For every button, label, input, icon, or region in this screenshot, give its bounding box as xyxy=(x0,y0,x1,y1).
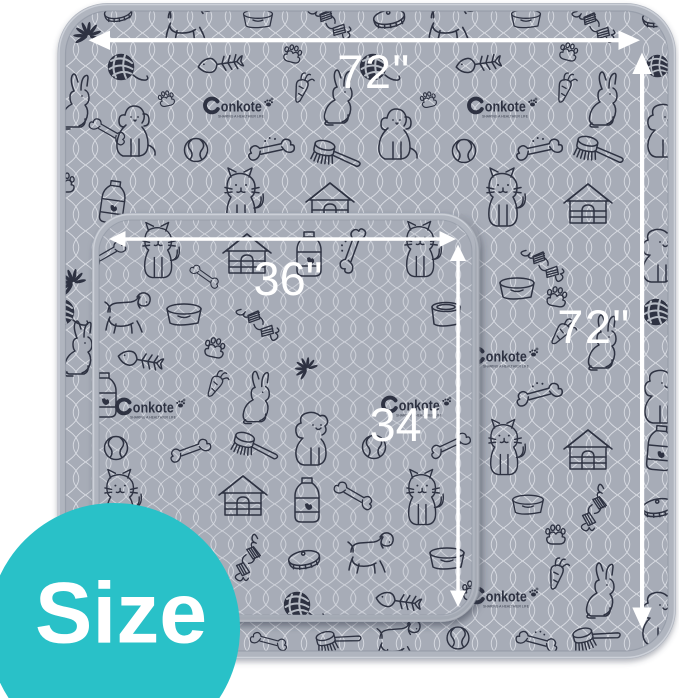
svg-text:Size: Size xyxy=(35,566,207,662)
svg-text:36": 36" xyxy=(254,252,323,305)
svg-text:72": 72" xyxy=(337,45,410,98)
svg-text:72": 72" xyxy=(557,300,630,353)
svg-text:34": 34" xyxy=(370,398,439,451)
